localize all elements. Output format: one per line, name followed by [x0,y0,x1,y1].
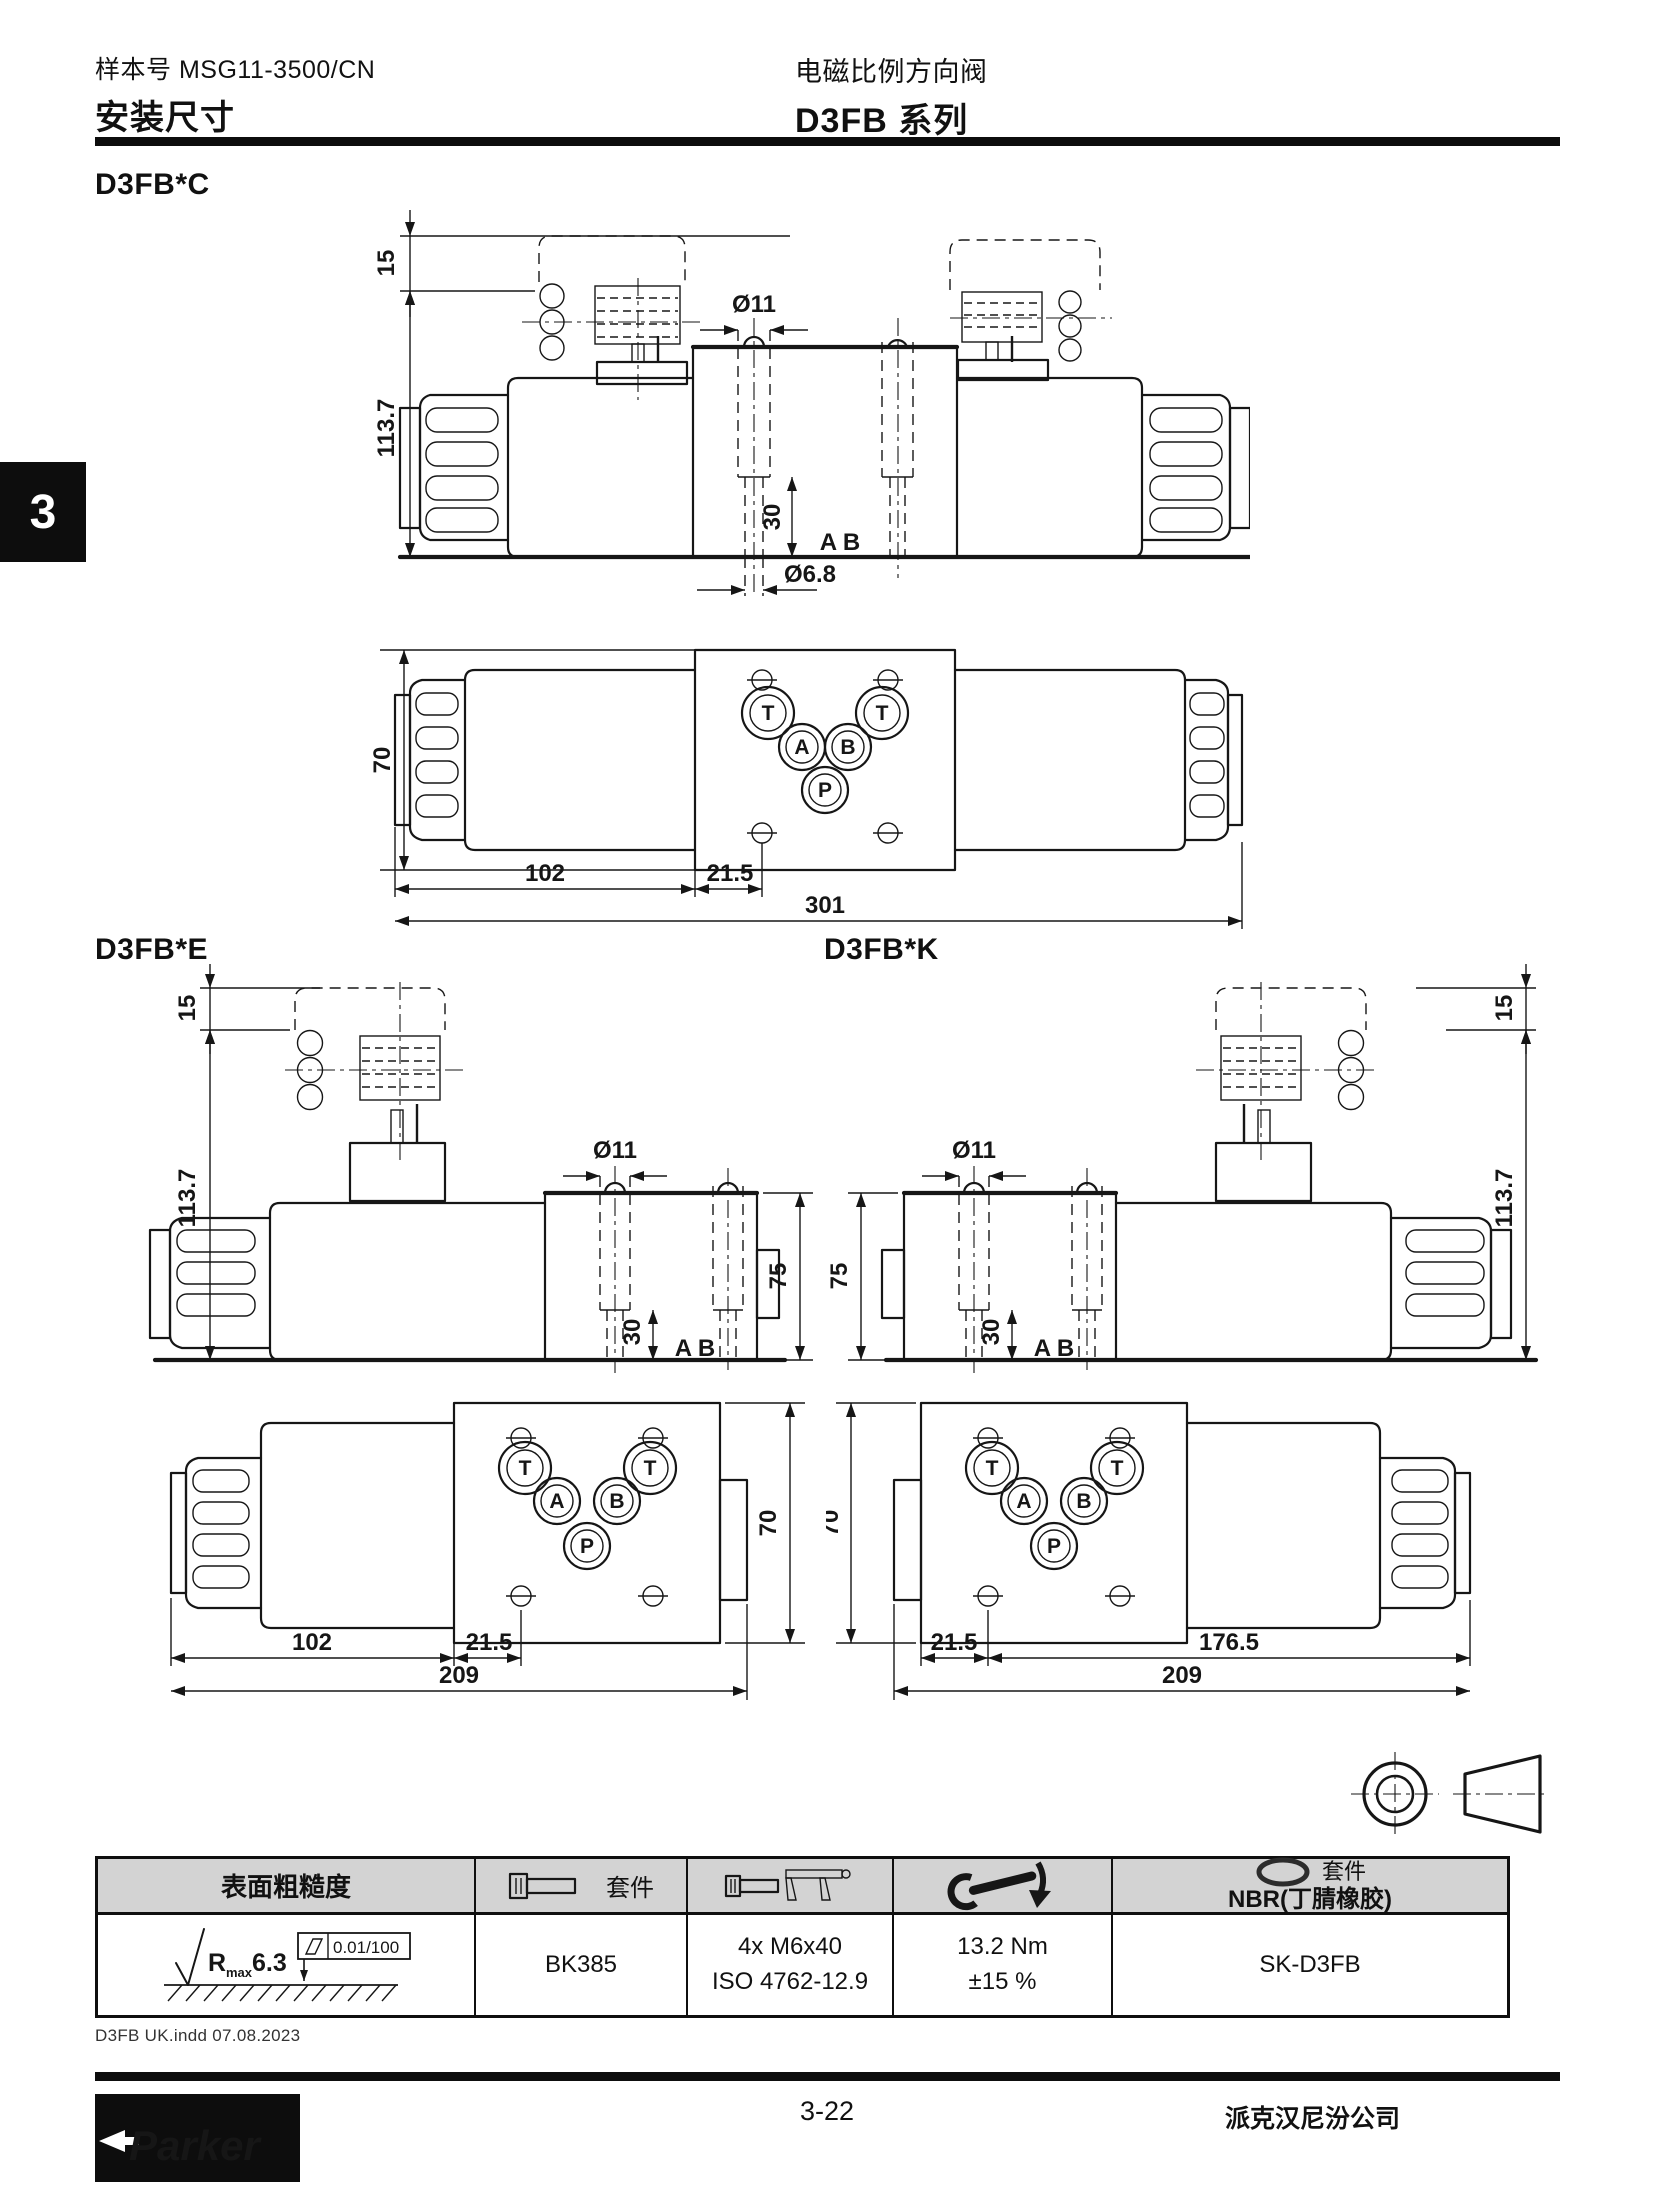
dim-label: 70 [370,747,396,774]
hatching [168,1985,396,2001]
port-b-label: B [840,736,855,759]
header-bolt-kit: 套件 [476,1859,688,1915]
kit-label: 套件 [606,1868,654,1903]
port-face-label: A B [1034,1335,1074,1362]
dim-label: 15 [174,995,201,1022]
torque-tolerance: ±15 % [957,1965,1048,2000]
dim-label: 21.5 [466,1629,513,1656]
dim-label: 209 [1162,1662,1202,1689]
port-a-label: A [549,1490,564,1513]
dim-label: 70 [755,1510,782,1537]
dimension-dia11-30-ab: Ø11 30 A B Ø6.8 [697,291,860,596]
dim-label: 15 [1491,995,1518,1022]
dimensions: 70 102 21.5 301 [370,650,1242,929]
bolt-icon [508,1871,594,1901]
cell-screws: 4x M6x40 ISO 4762-12.9 [688,1915,894,2015]
catalog-number: 样本号 MSG11-3500/CN [95,50,375,86]
kit-label: 套件 [1322,1860,1366,1884]
dim-label: Ø11 [952,1137,996,1164]
right-connector [950,240,1112,380]
header-left: 样本号 MSG11-3500/CN 安装尺寸 [95,50,375,139]
port-t-label: T [986,1457,999,1480]
dim-label: 30 [759,504,786,531]
torque-value: 13.2 Nm [957,1930,1048,1965]
d3fbe-side-view-drawing: 15 113.7 [95,958,825,1390]
dim-label: 102 [525,860,565,887]
dimensions: 70 21.5 176.5 209 [826,1403,1470,1700]
dimensions-center: Ø11 30 A B [922,1137,1074,1362]
port-b-label: B [609,1490,624,1513]
roughness-value: 6.3 [252,1949,287,1977]
d3fbk-bottom-view-drawing: T T A B P 70 21.5 176.5 209 [826,1388,1536,1713]
footer-rule [95,2072,1560,2081]
port-t-label: T [762,702,775,725]
projection-symbol [1335,1742,1550,1842]
screws-line1: 4x M6x40 [712,1930,868,1965]
connector [1196,982,1376,1201]
cell-surface-roughness: R max 6.3 0.01/100 [98,1915,476,2015]
seal-kit-header-text: 套件 NBR(丁腈橡胶) [1228,1857,1392,1913]
dim-label: 113.7 [373,399,400,458]
surface-roughness-label: 表面粗糙度 [221,1867,351,1904]
port-face-label: A B [675,1335,715,1362]
dim-label: 21.5 [931,1629,978,1656]
dim-label: 30 [978,1319,1005,1346]
port-p-label: P [1047,1535,1061,1558]
seal-kit-value: SK-D3FB [1259,1948,1360,1983]
ports: T T A B P [966,1428,1143,1606]
roughness-sub: max [226,1965,253,1980]
flatness-value: 0.01/100 [333,1938,399,1957]
d3fbc-bottom-view-drawing: T T A B P 70 102 21.5 301 [370,635,1250,930]
dim-label: 301 [805,892,845,919]
cell-seal-kit: SK-D3FB [1113,1915,1507,2015]
dim-label: Ø6.8 [784,561,836,588]
valve-outline [400,347,1250,557]
page-title: 安装尺寸 [95,90,375,139]
valve-outline [171,1403,747,1643]
cell-bolt-kit: BK385 [476,1915,688,2015]
dim-label: 30 [619,1319,646,1346]
left-connector [522,236,702,400]
dim-label: 15 [373,250,400,277]
dimensions-right: 15 113.7 [1416,964,1536,1360]
dim-label: 113.7 [1491,1169,1518,1228]
ports: T T A B P [499,1428,676,1606]
dim-label: 21.5 [707,860,754,887]
roughness-r: R [208,1949,226,1977]
spec-table: 表面粗糙度 套件 [95,1856,1510,2018]
dimensions-left: 75 [826,1193,898,1360]
port-a-label: A [1016,1490,1031,1513]
roughness-symbol: R max 6.3 0.01/100 [136,1919,436,2011]
parker-logo-text: Parker [129,2122,262,2169]
series-title: D3FB 系列 [795,93,988,142]
d3fbk-side-view-drawing: 75 Ø11 30 A B [826,958,1566,1390]
chapter-tab: 3 [0,462,86,562]
dim-label: Ø11 [593,1137,637,1164]
port-t-label: T [519,1457,532,1480]
header-torque [894,1859,1113,1915]
chapter-number: 3 [30,485,57,540]
dimension-15-113: 15 113.7 [373,210,790,557]
port-t-label: T [644,1457,657,1480]
d3fbe-bottom-view-drawing: T T A B P 70 102 21.5 209 [105,1388,815,1713]
nbr-label: NBR(丁腈橡胶) [1228,1887,1392,1913]
bolt-kit-value: BK385 [545,1948,617,1983]
dimensions: 70 102 21.5 209 [171,1403,805,1700]
screws-line2: ISO 4762-12.9 [712,1965,868,2000]
print-note: D3FB UK.indd 07.08.2023 [95,2026,300,2046]
dim-label: Ø11 [732,291,776,318]
connector [285,982,465,1201]
d3fbc-side-view-drawing: 15 113.7 [250,150,1250,650]
port-t-label: T [876,702,889,725]
ports: T T A B P [742,670,908,843]
header-rule [95,137,1560,146]
header-screws [688,1859,894,1915]
port-face-label: A B [820,529,860,556]
section-label-d3fbc: D3FB*C [95,168,210,202]
page-number: 3-22 [0,2096,1654,2127]
header-right: 电磁比例方向阀 D3FB 系列 [795,50,988,142]
dim-label: 75 [826,1263,853,1290]
valve-outline [894,1403,1470,1643]
header-surface-roughness: 表面粗糙度 [98,1859,476,1915]
dim-label: 176.5 [1199,1629,1259,1656]
product-title: 电磁比例方向阀 [795,50,988,89]
torque-wrench-icon [943,1860,1063,1912]
header-seal-kit: 套件 NBR(丁腈橡胶) [1113,1859,1507,1915]
port-a-label: A [794,736,809,759]
port-t-label: T [1111,1457,1124,1480]
cell-torque: 13.2 Nm ±15 % [894,1915,1113,2015]
o-ring-icon [1254,1857,1312,1887]
dimension-15-113: 15 113.7 [174,964,320,1360]
dim-label: 209 [439,1662,479,1689]
dim-label: 102 [292,1629,332,1656]
dim-label: 75 [765,1263,792,1290]
dim-label: 70 [826,1510,844,1537]
valve-outline [395,650,1242,870]
port-b-label: B [1076,1490,1091,1513]
company-name: 派克汉尼汾公司 [1100,2099,1400,2135]
port-p-label: P [580,1535,594,1558]
bolt-caliper-icon [724,1866,856,1906]
port-p-label: P [818,779,832,802]
